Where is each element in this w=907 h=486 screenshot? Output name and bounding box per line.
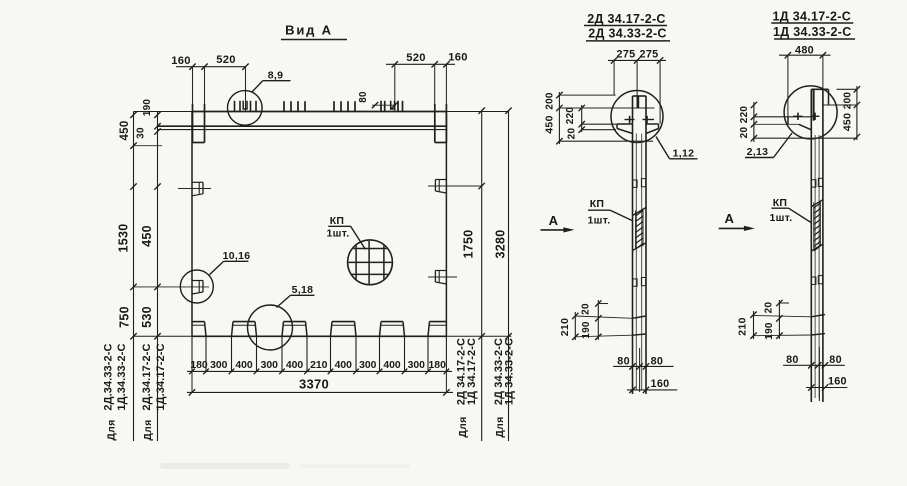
svg-text:180: 180 <box>190 360 208 371</box>
svg-text:10,16: 10,16 <box>223 250 251 262</box>
svg-text:200: 200 <box>842 92 853 110</box>
svg-text:400: 400 <box>235 360 253 371</box>
svg-text:1750: 1750 <box>462 229 476 258</box>
svg-text:1,12: 1,12 <box>673 148 695 160</box>
svg-text:400: 400 <box>335 360 353 371</box>
svg-text:8,9: 8,9 <box>268 70 284 82</box>
svg-text:275: 275 <box>617 49 636 61</box>
svg-text:160: 160 <box>828 376 847 388</box>
svg-text:450: 450 <box>119 120 131 140</box>
svg-text:80: 80 <box>829 354 842 366</box>
svg-text:80: 80 <box>651 356 664 368</box>
svg-text:300: 300 <box>261 360 279 371</box>
svg-text:190: 190 <box>142 99 153 117</box>
svg-text:1Д 34.33-2-С: 1Д 34.33-2-С <box>504 338 516 405</box>
svg-text:80: 80 <box>358 91 369 103</box>
svg-text:750: 750 <box>118 306 132 328</box>
svg-text:КП: КП <box>590 198 605 210</box>
svg-text:210: 210 <box>310 360 328 371</box>
svg-text:220: 220 <box>565 107 576 125</box>
svg-text:1шт.: 1шт. <box>770 212 793 224</box>
svg-text:400: 400 <box>383 360 401 371</box>
svg-text:2Д.34.33-2-С: 2Д.34.33-2-С <box>103 343 115 410</box>
svg-text:180: 180 <box>429 360 447 371</box>
svg-text:20: 20 <box>739 127 750 139</box>
svg-text:520: 520 <box>216 54 236 66</box>
svg-text:300: 300 <box>359 360 377 371</box>
svg-text:300: 300 <box>408 360 426 371</box>
svg-text:300: 300 <box>210 360 228 371</box>
svg-text:530: 530 <box>140 306 154 328</box>
svg-text:3370: 3370 <box>299 377 329 392</box>
svg-text:160: 160 <box>448 52 468 64</box>
svg-text:210: 210 <box>559 318 571 336</box>
svg-text:1Д.34.33-2-С: 1Д.34.33-2-С <box>116 343 128 410</box>
svg-text:Вид А: Вид А <box>285 23 333 38</box>
svg-text:А: А <box>549 213 559 228</box>
svg-text:2,13: 2,13 <box>747 146 769 158</box>
svg-text:Для: Для <box>142 419 154 440</box>
svg-text:2Д.34.17-2-С: 2Д.34.17-2-С <box>141 343 153 410</box>
svg-text:160: 160 <box>171 55 191 67</box>
svg-text:160: 160 <box>651 378 670 390</box>
svg-text:Для: Для <box>106 419 118 440</box>
svg-text:1шт.: 1шт. <box>588 215 611 227</box>
svg-text:КП: КП <box>773 197 788 209</box>
svg-text:20: 20 <box>580 303 591 315</box>
svg-text:Для: Для <box>494 416 506 437</box>
svg-text:1шт.: 1шт. <box>327 228 350 240</box>
svg-text:1Д 34.17-2-С: 1Д 34.17-2-С <box>466 338 478 405</box>
svg-text:1Д.34.17-2-С: 1Д.34.17-2-С <box>155 343 167 410</box>
svg-text:275: 275 <box>640 49 659 61</box>
svg-text:80: 80 <box>617 356 630 368</box>
svg-text:190: 190 <box>581 321 592 339</box>
svg-text:190: 190 <box>764 322 775 340</box>
svg-text:450: 450 <box>841 113 853 131</box>
svg-text:КП: КП <box>330 215 345 227</box>
svg-text:А: А <box>725 211 735 226</box>
svg-text:1Д 34.33-2-С: 1Д 34.33-2-С <box>773 25 852 39</box>
svg-text:20: 20 <box>567 128 578 140</box>
svg-text:1530: 1530 <box>117 223 131 252</box>
svg-text:2Д 34.17-2-С: 2Д 34.17-2-С <box>587 12 666 26</box>
svg-text:450: 450 <box>543 115 555 133</box>
svg-text:1Д 34.17-2-С: 1Д 34.17-2-С <box>773 10 852 24</box>
svg-text:3280: 3280 <box>494 229 508 258</box>
svg-text:2Д 34.33-2-С: 2Д 34.33-2-С <box>588 27 667 41</box>
svg-text:20: 20 <box>763 302 774 314</box>
svg-text:30: 30 <box>136 127 147 139</box>
svg-text:80: 80 <box>786 354 799 366</box>
svg-text:450: 450 <box>140 225 154 247</box>
svg-text:210: 210 <box>737 317 749 335</box>
svg-text:220: 220 <box>739 106 750 124</box>
svg-text:Для: Для <box>457 416 469 437</box>
svg-text:200: 200 <box>544 92 555 110</box>
svg-text:5,18: 5,18 <box>292 284 314 296</box>
svg-text:520: 520 <box>406 52 426 64</box>
svg-text:400: 400 <box>286 360 304 371</box>
